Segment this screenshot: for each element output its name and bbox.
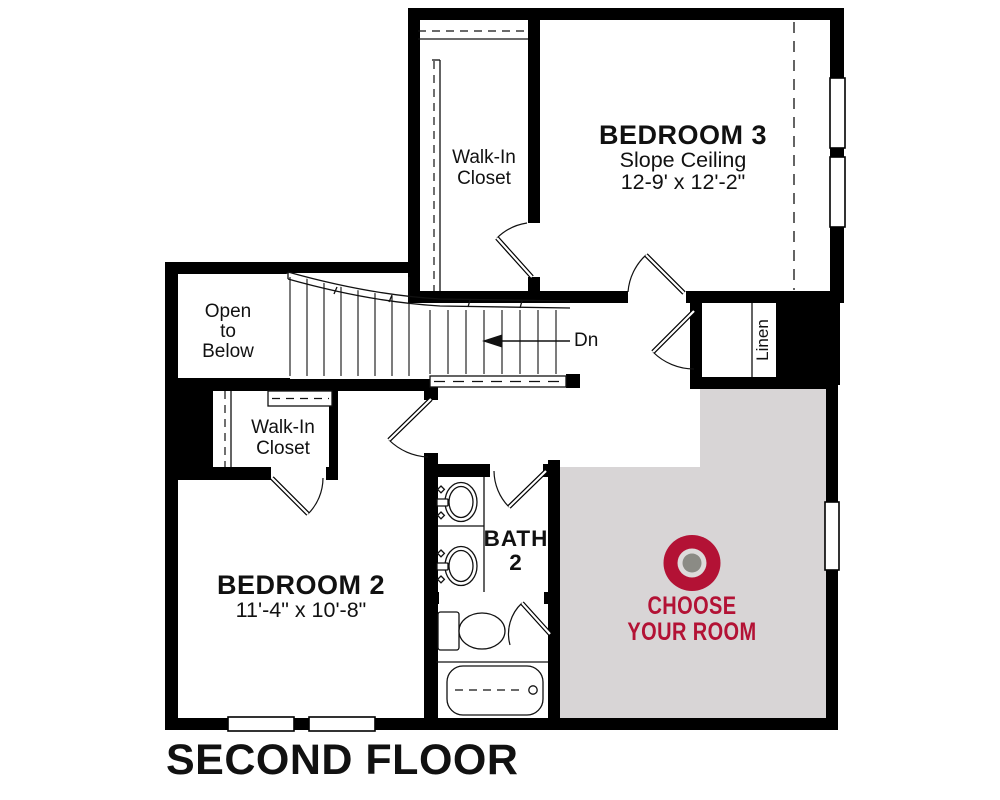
room-name: BATH <box>466 527 566 551</box>
room-name: BEDROOM 2 <box>170 571 432 599</box>
window <box>830 78 845 148</box>
bathtub-icon <box>436 662 548 715</box>
bath2-label: BATH 2 <box>466 527 566 575</box>
room-dimensions: 12-9' x 12'-2" <box>553 171 813 193</box>
choose-room-line[interactable]: YOUR ROOM <box>612 619 772 645</box>
floor-title: SECOND FLOOR <box>166 738 518 782</box>
plan-linework <box>0 0 1000 800</box>
floor-plan: BEDROOM 3 Slope Ceiling 12-9' x 12'-2" W… <box>0 0 1000 800</box>
stairs-down-arrow <box>482 335 570 348</box>
choose-room-line[interactable]: CHOOSE <box>612 593 772 619</box>
open-below-line: to <box>168 322 288 342</box>
stair-guardrail <box>430 376 566 387</box>
door-bedroom2 <box>389 399 431 457</box>
window <box>309 717 375 731</box>
open-below-line: Below <box>168 342 288 362</box>
open-below-line: Open <box>168 302 288 322</box>
toilet-icon <box>438 612 505 650</box>
window <box>830 157 845 227</box>
choose-room-label[interactable]: CHOOSE YOUR ROOM <box>612 593 772 645</box>
room-number: 2 <box>466 551 566 575</box>
bedroom3-label: BEDROOM 3 Slope Ceiling 12-9' x 12'-2" <box>553 121 813 193</box>
walk-in-closet-left-label: Walk-In Closet <box>213 417 353 459</box>
closet-label-line: Closet <box>414 168 554 189</box>
closet-label-line: Closet <box>213 438 353 459</box>
window <box>825 502 839 570</box>
door-choose-room <box>653 311 694 369</box>
bedroom2-label: BEDROOM 2 11'-4" x 10'-8" <box>170 571 432 622</box>
room-name: BEDROOM 3 <box>553 121 813 149</box>
door-closet1 <box>497 223 532 277</box>
door-bath <box>494 471 546 507</box>
stairs-down-label: Dn <box>574 330 598 352</box>
walk-in-closet-top-label: Walk-In Closet <box>414 147 554 189</box>
room-dimensions: 11'-4" x 10'-8" <box>170 599 432 622</box>
bullseye-target-icon[interactable] <box>664 535 721 591</box>
closet-label-line: Walk-In <box>213 417 353 438</box>
window <box>228 717 294 731</box>
sink-icon <box>437 483 477 522</box>
door-closet2 <box>272 478 323 514</box>
closet-label-line: Walk-In <box>414 147 554 168</box>
ceiling-note: Slope Ceiling <box>553 149 813 171</box>
open-to-below-label: Open to Below <box>168 302 288 362</box>
door-bedroom3 <box>628 255 684 293</box>
door-toilet <box>508 603 550 645</box>
linen-label: Linen <box>753 300 773 380</box>
